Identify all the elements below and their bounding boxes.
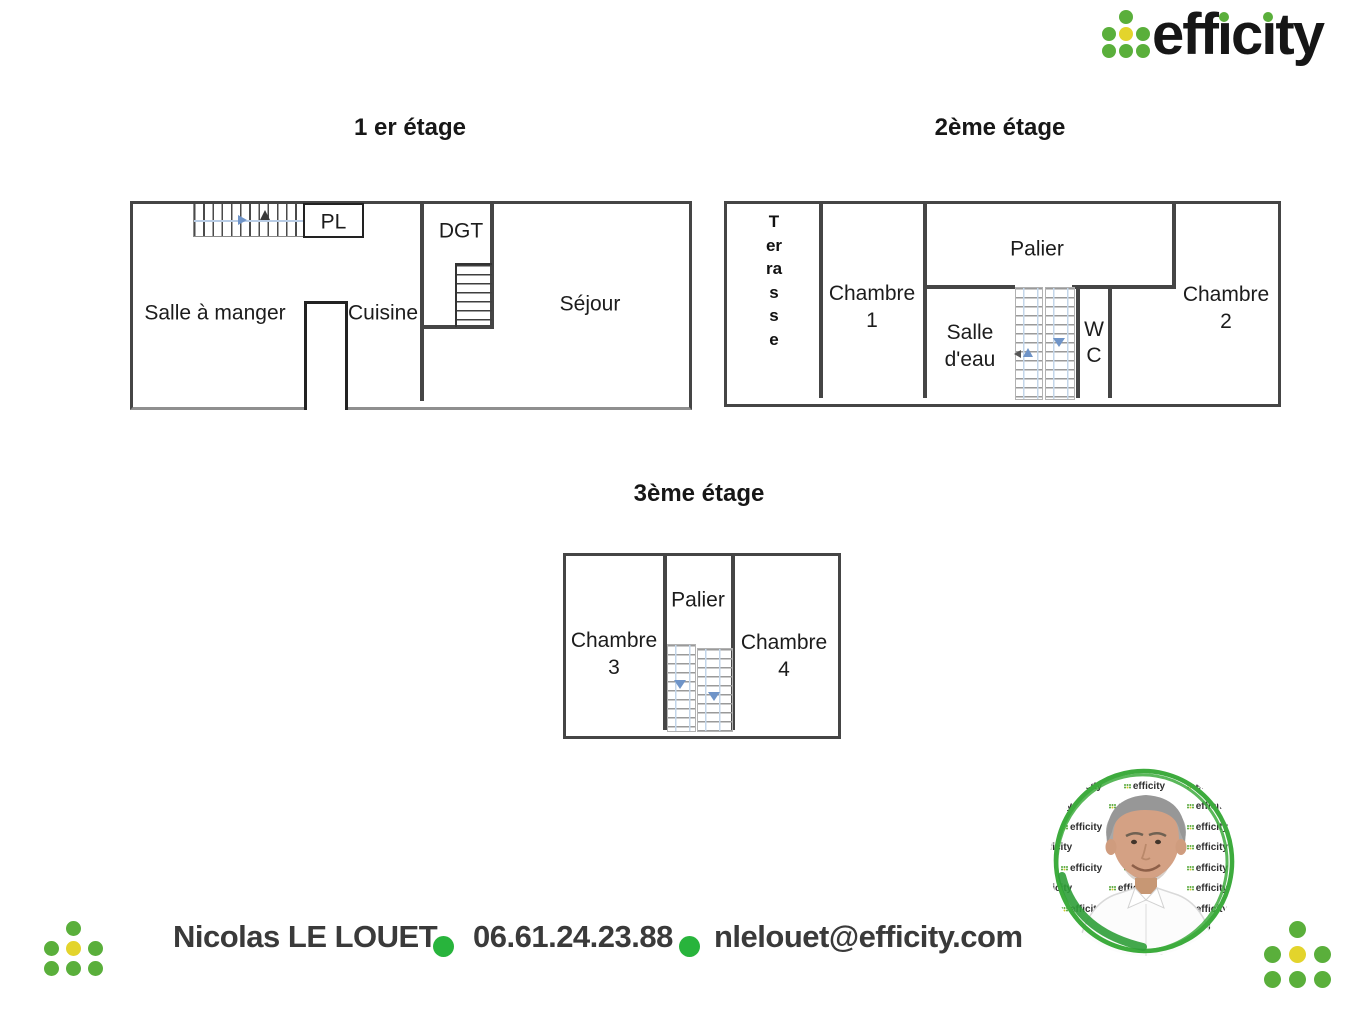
stairs-entry-arrow [1014,350,1021,358]
floorplan-page: { "logo": { "parts": ["eff", "ı", "c", "… [0,0,1360,1019]
stairs-up-arrow [1023,348,1033,357]
wall [819,204,823,398]
shower-room-label: Salle d'eau [945,319,996,373]
floor3-plan: Chambre 3 Palier Chambre 4 [563,553,841,739]
wall [1076,287,1080,398]
bedroom1-label: Chambre 1 [829,280,915,334]
stairs-direction-arrow [238,215,247,225]
wall [923,204,927,398]
landing-label: Palier [1010,236,1064,263]
stairs-down-arrow [1053,338,1065,347]
green-brush-ring [1048,766,1240,958]
dgt-stairs [455,263,492,327]
wc-line2: C [1084,343,1104,369]
wc-label: W C [1084,317,1104,369]
agent-name: Nicolas LE LOUET [173,919,437,955]
bedroom2-label: Chambre 2 [1183,281,1269,335]
dgt-label: DGT [439,218,483,245]
wc-line1: W [1084,317,1104,343]
floor3-title: 3ème étage [563,480,835,508]
wall [1108,287,1112,398]
efficity-logo-wordmark: effıcıty [1152,0,1323,70]
wall [923,285,1015,289]
bedroom2-line2: 2 [1183,308,1269,335]
closet-pl-label: PL [321,209,347,236]
stairs-down-arrow [674,680,686,689]
efficity-dots-decoration-right [1264,921,1332,989]
terrace-label: Terrasse [765,210,783,352]
bedroom4-line1: Chambre [741,629,827,656]
wall [1172,204,1176,289]
bedroom3-label: Chambre 3 [571,627,657,681]
green-bullet-icon [433,936,454,957]
wall [1072,285,1176,289]
logo-i-green-dot: ı [1261,0,1275,70]
closet-pl: PL [303,203,364,238]
dining-room-label: Salle à manger [144,300,285,327]
bedroom4-label: Chambre 4 [741,629,827,683]
shower-line1: Salle [945,319,996,346]
stairs-up-arrow [260,210,270,220]
logo-part: ty [1275,2,1323,67]
floor1-plan: PL Salle à manger Cuisine DGT Séjour [130,201,692,410]
floor2-title: 2ème étage [724,114,1276,142]
bedroom1-line2: 1 [829,307,915,334]
floor2-plan: Terrasse Chambre 1 Palier Salle d'eau W … [724,201,1281,407]
floor3-stairs-flight [697,648,733,732]
living-room-label: Séjour [560,291,621,318]
stairs-down-arrow [708,692,720,701]
floor2-stairs-flight-up [1015,287,1043,400]
shower-line2: d'eau [945,346,996,373]
bedroom3-line2: 3 [571,654,657,681]
kitchen-partition [304,301,348,410]
efficity-dots-decoration-left [44,921,104,977]
agent-photo: efficityefficityefficity efficityefficit… [1048,766,1240,958]
bedroom1-line1: Chambre [829,280,915,307]
floor1-stairs [193,204,305,237]
agent-email: nlelouet@efficity.com [714,919,1023,955]
bedroom3-line1: Chambre [571,627,657,654]
floor1-title: 1 er étage [130,114,690,142]
agent-phone: 06.61.24.23.88 [473,919,673,955]
bedroom4-line2: 4 [741,656,827,683]
logo-part: c [1231,2,1261,67]
kitchen-label: Cuisine [348,300,418,327]
bedroom2-line1: Chambre [1183,281,1269,308]
logo-part: eff [1152,2,1217,67]
efficity-logo-dots-icon [1102,10,1150,58]
wall [420,204,424,401]
landing-label: Palier [671,587,725,614]
logo-i-green-dot: ı [1217,0,1231,70]
green-bullet-icon [679,936,700,957]
